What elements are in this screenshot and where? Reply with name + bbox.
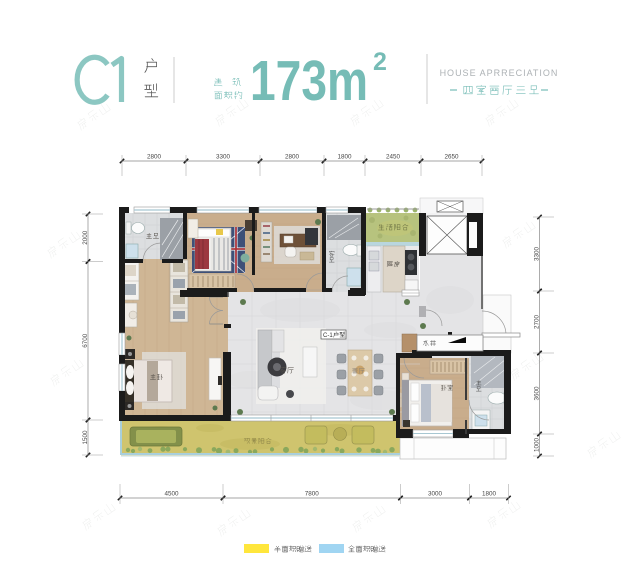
svg-text:3600: 3600 [534,386,541,401]
svg-text:6700: 6700 [82,333,89,348]
svg-text:2000: 2000 [82,230,89,245]
svg-text:3000: 3000 [428,491,443,498]
svg-text:2650: 2650 [444,154,459,161]
svg-text:4500: 4500 [164,491,179,498]
svg-text:173m: 173m [250,49,368,113]
svg-text:HOUSE APRRECIATION: HOUSE APRRECIATION [440,68,559,78]
svg-text:2800: 2800 [285,154,300,161]
svg-text:1800: 1800 [337,154,352,161]
svg-text:C-1: C-1 [323,333,333,339]
svg-text:2450: 2450 [386,154,401,161]
svg-text:1800: 1800 [482,491,497,498]
svg-text:2800: 2800 [147,154,162,161]
svg-text:7800: 7800 [305,491,320,498]
svg-text:3300: 3300 [534,247,541,262]
svg-text:2: 2 [373,48,387,76]
svg-text:1000: 1000 [534,438,541,453]
svg-text:1500: 1500 [82,430,89,445]
svg-text:2700: 2700 [534,315,541,330]
svg-text:3300: 3300 [216,154,231,161]
